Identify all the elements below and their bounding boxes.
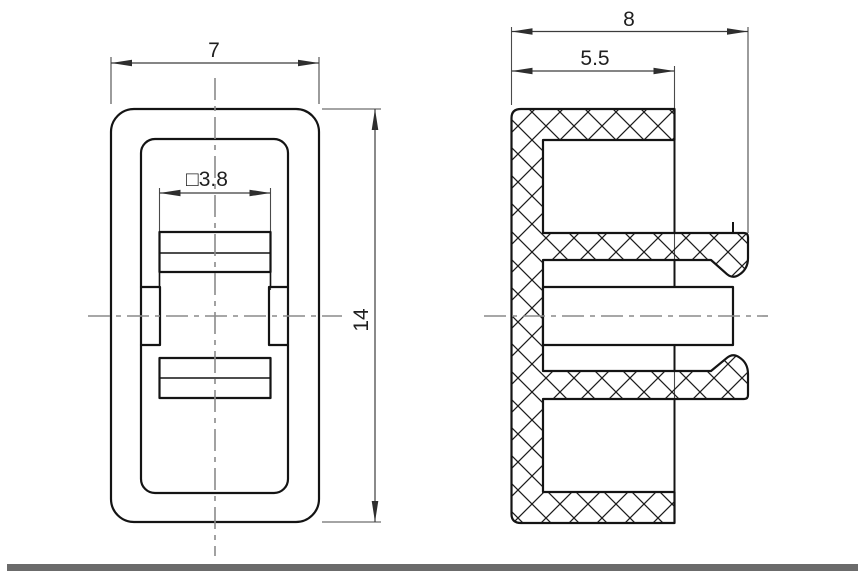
dimension-label-depth: 8 (623, 8, 635, 31)
dimension-label-flange: 5.5 (580, 47, 609, 70)
dimension-label-width: 7 (208, 39, 220, 62)
dimension-label-height: 14 (350, 308, 373, 332)
dimension-label-square-hole: □3.8 (186, 168, 228, 191)
drawing-frame-bottom-border (7, 564, 858, 571)
drawing-page: 7 14 □3.8 (0, 0, 862, 581)
technical-drawing-canvas: 7 14 □3.8 (0, 0, 862, 581)
